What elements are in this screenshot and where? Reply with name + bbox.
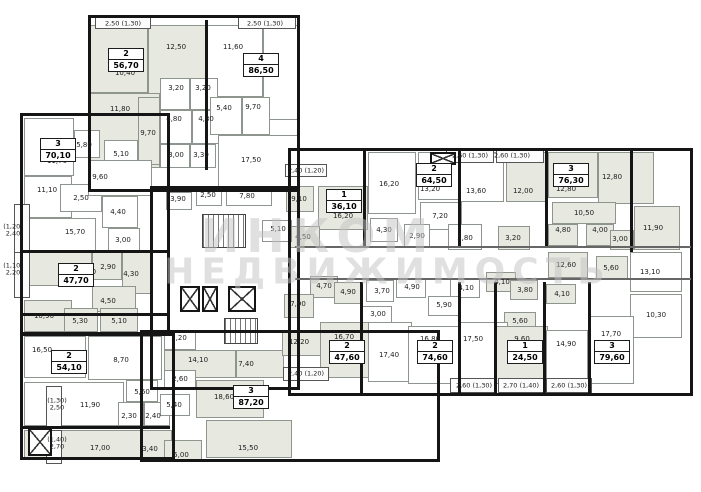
room-area-label: 4,80 <box>166 115 182 123</box>
balcony-label: 2,40 (1,20) <box>288 167 324 174</box>
room-area-label: 17,70 <box>601 330 621 338</box>
inner-wall <box>543 282 546 394</box>
apartment-rooms-count: 3 <box>595 341 629 352</box>
apartment-area: 56,70 <box>109 60 143 71</box>
room-area-label: 12,00 <box>513 187 533 195</box>
apartment-label: 254,10 <box>51 350 87 374</box>
apartment-rooms-count: 3 <box>554 164 588 175</box>
room-area-label: 5,90 <box>436 301 452 309</box>
room <box>160 78 190 110</box>
room-area-label: 4,10 <box>494 278 510 286</box>
room-area-label: 12,60 <box>556 261 576 269</box>
room-area-label: 11,90 <box>643 224 663 232</box>
room-area-label: 4,80 <box>555 226 571 234</box>
room-area-label: 3,70 <box>374 287 390 295</box>
room-area-label: 10,30 <box>646 311 666 319</box>
apartment-area: 24,50 <box>508 352 542 363</box>
balcony-label: 2,60 (1,30) <box>456 382 492 389</box>
room-area-label: 11,60 <box>223 43 243 51</box>
inner-wall <box>630 150 633 252</box>
apartment-area: 79,60 <box>595 352 629 363</box>
apartment-rooms-count: 1 <box>508 341 542 352</box>
room-area-label: 12,80 <box>602 173 622 181</box>
balcony-label: 2,40 (1,20) <box>288 370 324 377</box>
room-area-label: 4,10 <box>458 284 474 292</box>
apartment-area: 86,50 <box>244 65 278 76</box>
apartment-label: 136,10 <box>326 189 362 213</box>
balcony-label: 2,60 (1,30) <box>494 152 530 159</box>
room-area-label: 8,70 <box>113 356 129 364</box>
room-area-label: 3,40 <box>142 445 158 453</box>
room-area-label: 2,90 <box>100 263 116 271</box>
inner-wall <box>295 246 691 248</box>
room-area-label: 5,10 <box>270 225 286 233</box>
room-area-label: 14,90 <box>556 340 576 348</box>
apartment-rooms-count: 2 <box>52 351 86 362</box>
room-area-label: 16,50 <box>32 346 52 354</box>
room-area-label: 15,70 <box>65 228 85 236</box>
room-area-label: 7,40 <box>238 360 254 368</box>
apartment-label: 370,10 <box>40 138 76 162</box>
apartment-rooms-count: 2 <box>418 341 452 352</box>
room <box>546 330 588 384</box>
room-area-label: 7,80 <box>239 192 255 200</box>
room-area-label: 5,40 <box>216 104 232 112</box>
floor-plan: ИНКОМ НЕДВИЖИМОСТЬ 10,4012,5011,6010,101… <box>0 0 701 492</box>
apartment-rooms-count: 2 <box>109 49 143 60</box>
room-area-label: 5,80 <box>76 141 92 149</box>
balcony-label: 2,60 (1,30) <box>551 382 587 389</box>
room-area-label: 5,40 <box>166 401 182 409</box>
room-area-label: 17,50 <box>241 156 261 164</box>
apartment-label: 264,50 <box>416 163 452 187</box>
room-area-label: 13,60 <box>466 187 486 195</box>
room-area-label: 4,50 <box>100 297 116 305</box>
balcony-label: (1,20) 2,40 <box>3 224 23 239</box>
staircase <box>202 214 246 248</box>
room-area-label: 3,30 <box>193 151 209 159</box>
room-area-label: 5,80 <box>457 234 473 242</box>
room-area-label: 4,10 <box>554 290 570 298</box>
apartment-label: 124,50 <box>507 340 543 364</box>
room-area-label: 9,60 <box>92 173 108 181</box>
inner-wall <box>458 282 461 394</box>
room-area-label: 3,90 <box>170 195 186 203</box>
room-area-label: 4,00 <box>592 226 608 234</box>
room-area-label: 13,10 <box>640 268 660 276</box>
room-area-label: 15,50 <box>238 444 258 452</box>
apartment-label: 256,70 <box>108 48 144 72</box>
room-area-label: 3,20 <box>505 234 521 242</box>
apartment-area: 36,10 <box>327 201 361 212</box>
room <box>24 218 96 252</box>
apartment-area: 87,20 <box>234 397 268 408</box>
room-area-label: 17,00 <box>90 444 110 452</box>
elevator-shaft <box>180 286 200 312</box>
room-area-label: 12,50 <box>166 43 186 51</box>
apartment-label: 376,30 <box>553 163 589 187</box>
room-area-label: 14,10 <box>188 356 208 364</box>
room-area-label: 5,10 <box>111 317 127 325</box>
room-area-label: 4,90 <box>404 283 420 291</box>
balcony-label: (1,30) 2,50 <box>47 398 67 413</box>
room-area-label: 2,50 <box>200 191 216 199</box>
elevator-shaft <box>202 286 218 312</box>
apartment-area: 47,70 <box>59 275 93 286</box>
apartment-label: 486,50 <box>243 53 279 77</box>
room-area-label: 5,60 <box>134 388 150 396</box>
balcony-label: 2,70 (1,40) <box>503 382 539 389</box>
elevator-shaft <box>228 286 256 312</box>
room-area-label: 9,10 <box>291 195 307 203</box>
room-area-label: 2,60 <box>172 375 188 383</box>
apartment-rooms-count: 2 <box>59 264 93 275</box>
room-area-label: 10,90 <box>34 312 54 320</box>
room-area-label: 2,20 <box>171 334 187 342</box>
room-area-label: 3,00 <box>612 235 628 243</box>
room-area-label: 9,70 <box>140 129 156 137</box>
room-area-label: 3,20 <box>195 84 211 92</box>
room-area-label: 2,40 <box>145 412 161 420</box>
room-area-label: 18,60 <box>214 393 234 401</box>
room <box>210 97 242 135</box>
room-area-label: 4,70 <box>316 282 332 290</box>
balcony-label: 2,50 (1,30) <box>105 20 141 27</box>
room-area-label: 7,90 <box>290 300 306 308</box>
inner-wall <box>363 150 366 248</box>
room-area-label: 4,90 <box>340 288 356 296</box>
balcony-label: (1,40) 2,70 <box>47 437 67 452</box>
room-area-label: 4,80 <box>198 115 214 123</box>
room-area-label: 3,00 <box>168 151 184 159</box>
room <box>206 420 292 458</box>
inner-wall <box>545 150 548 248</box>
inner-wall <box>20 250 168 253</box>
apartment-area: 74,60 <box>418 352 452 363</box>
apartment-area: 76,30 <box>554 175 588 186</box>
apartment-area: 47,60 <box>330 352 364 363</box>
room-area-label: 5,00 <box>173 451 189 459</box>
room-area-label: 5,30 <box>72 317 88 325</box>
apartment-label: 274,60 <box>417 340 453 364</box>
inner-wall <box>360 282 363 394</box>
room-area-label: 10,50 <box>574 209 594 217</box>
apartment-label: 387,20 <box>233 385 269 409</box>
inner-wall <box>588 282 591 394</box>
room-area-label: 11,90 <box>80 401 100 409</box>
room-area-label: 5,60 <box>603 264 619 272</box>
room-area-label: 3,20 <box>168 84 184 92</box>
inner-wall <box>205 20 208 170</box>
room-area-label: 17,50 <box>463 335 483 343</box>
apartment-rooms-count: 3 <box>234 386 268 397</box>
room-area-label: 4,40 <box>110 208 126 216</box>
room-area-label: 11,10 <box>37 186 57 194</box>
room-area-label: 3,00 <box>370 310 386 318</box>
staircase <box>224 318 258 344</box>
room-area-label: 9,70 <box>245 103 261 111</box>
room-area-label: 16,20 <box>379 180 399 188</box>
room-area-label: 4,30 <box>123 270 139 278</box>
apartment-area: 64,50 <box>417 175 451 186</box>
room-area-label: 17,40 <box>379 351 399 359</box>
apartment-rooms-count: 2 <box>417 164 451 175</box>
balcony-label: 2,50 (1,30) <box>247 20 283 27</box>
apartment-label: 379,60 <box>594 340 630 364</box>
apartment-label: 247,60 <box>329 340 365 364</box>
room-area-label: 16,20 <box>333 212 353 220</box>
balcony-label: (1,10) 2,20 <box>3 263 23 278</box>
inner-wall <box>22 426 170 429</box>
room-area-label: 3,00 <box>115 236 131 244</box>
room-area-label: 5,60 <box>512 317 528 325</box>
room <box>24 382 124 426</box>
room-area-label: 7,20 <box>432 212 448 220</box>
room-area-label: 3,80 <box>517 286 533 294</box>
apartment-rooms-count: 3 <box>41 139 75 150</box>
apartment-area: 70,10 <box>41 150 75 161</box>
apartment-rooms-count: 2 <box>330 341 364 352</box>
room-area-label: 12,20 <box>289 338 309 346</box>
inner-wall <box>295 278 691 280</box>
room-area-label: 5,10 <box>113 150 129 158</box>
inner-wall <box>494 282 497 394</box>
apartment-rooms-count: 4 <box>244 54 278 65</box>
room-area-label: 2,90 <box>409 232 425 240</box>
room-area-label: 2,30 <box>121 412 137 420</box>
room-area-label: 2,50 <box>73 194 89 202</box>
apartment-area: 54,10 <box>52 362 86 373</box>
apartment-rooms-count: 1 <box>327 190 361 201</box>
room-area-label: 4,30 <box>376 226 392 234</box>
apartment-label: 247,70 <box>58 263 94 287</box>
room-area-label: 4,50 <box>295 233 311 241</box>
room-area-label: 11,80 <box>110 105 130 113</box>
balcony-label: 2,60 (1,30) <box>452 152 488 159</box>
